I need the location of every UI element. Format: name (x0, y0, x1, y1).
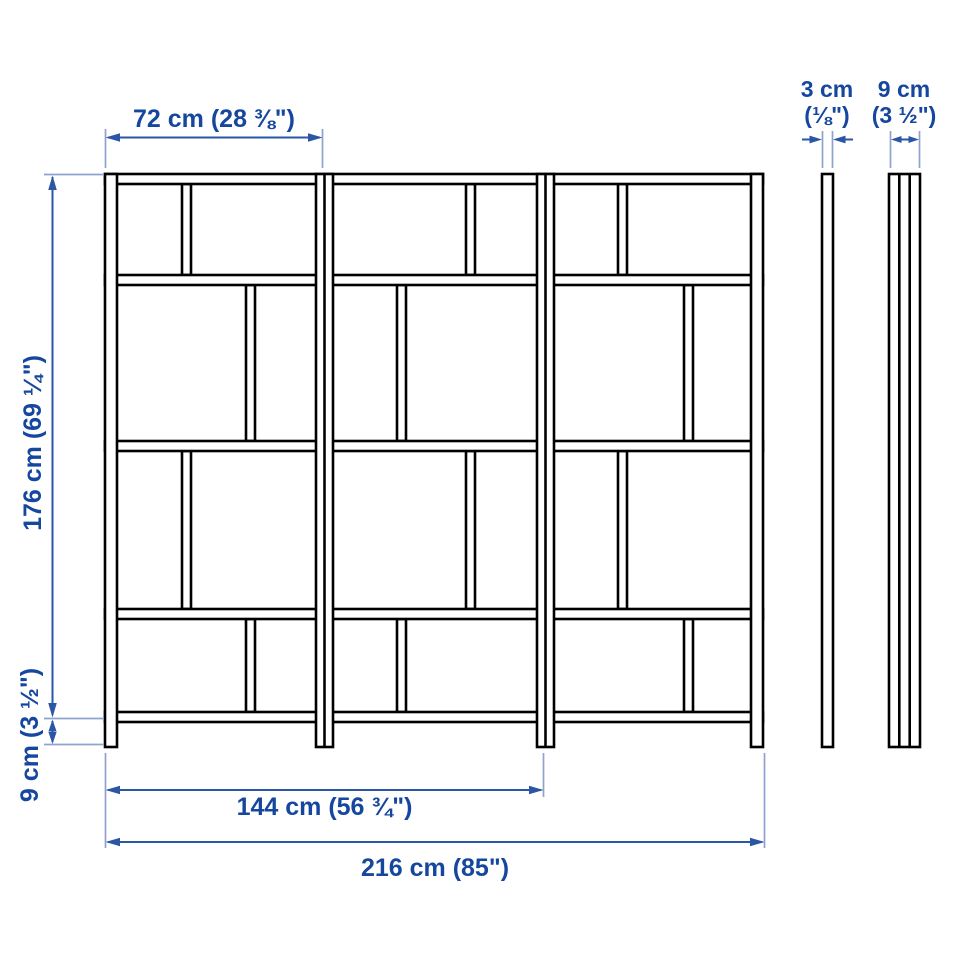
dimension-label-inches: (3 ½") (872, 102, 937, 128)
arrow-up-icon (48, 176, 57, 191)
shelf-divider (684, 619, 693, 712)
shelving-dimension-diagram: 72 cm (28 ⅜") 176 cm (69 ¼") 9 cm (3 ½")… (0, 0, 960, 948)
dimension-bay-width: 72 cm (28 ⅜") (106, 105, 323, 168)
shelf (105, 174, 763, 184)
dimension-label: 176 cm (69 ¼") (19, 355, 47, 531)
shelf-divider (618, 451, 627, 609)
arrow-down-icon (48, 703, 57, 718)
shelf-divider (466, 451, 475, 609)
side-profile-thin (822, 174, 833, 747)
arrow-left-icon (106, 133, 121, 142)
dimension-label-cm: 9 cm (878, 76, 930, 102)
arrow-left-icon (891, 136, 902, 143)
dimension-deep-depth: 9 cm (3 ½") (872, 76, 937, 168)
arrow-left-icon (106, 838, 121, 847)
shelving-unit-front-view (105, 174, 763, 747)
dimension-height: 176 cm (69 ¼") (19, 175, 104, 719)
arrow-right-icon (810, 136, 823, 144)
shelf-divider (182, 451, 191, 609)
shelf-divider (246, 619, 255, 712)
deep-profile-outline (889, 174, 920, 747)
arrow-left-icon (106, 786, 121, 795)
dimension-total-width: 216 cm (85") (106, 753, 765, 882)
arrow-right-icon (909, 136, 920, 143)
shelf (105, 441, 763, 451)
dimension-floor-clearance: 9 cm (3 ½") (16, 668, 104, 802)
shelf (105, 712, 763, 722)
frame-post (105, 174, 117, 747)
dimension-double-bay-width: 144 cm (56 ¾") (106, 753, 544, 848)
thin-profile-outline (822, 174, 833, 747)
dimension-label: 144 cm (56 ¾") (237, 793, 413, 821)
arrow-up-icon (48, 720, 56, 732)
shelf-divider (246, 285, 255, 441)
side-profile-deep (889, 174, 920, 747)
shelf-divider (618, 184, 627, 275)
dimension-label: 216 cm (85") (361, 854, 509, 882)
dimension-diagram-page: 72 cm (28 ⅜") 176 cm (69 ¼") 9 cm (3 ½")… (0, 0, 960, 948)
arrow-left-icon (833, 136, 846, 144)
shelves (105, 174, 763, 722)
dimension-label: 72 cm (28 ⅜") (133, 105, 295, 133)
dimension-thin-depth: 3 cm (⅛") (801, 76, 853, 168)
frame-posts (105, 174, 763, 747)
arrow-down-icon (48, 732, 56, 744)
shelf-divider (466, 184, 475, 275)
dimension-label-inches: (⅛") (804, 102, 849, 128)
arrow-right-icon (750, 838, 765, 847)
shelf (105, 275, 763, 285)
shelf-divider (182, 184, 191, 275)
shelf (105, 609, 763, 619)
arrow-right-icon (308, 133, 323, 142)
dimension-label: 9 cm (3 ½") (16, 668, 44, 802)
shelf-divider (397, 285, 406, 441)
shelf-divider (684, 285, 693, 441)
arrow-right-icon (529, 786, 544, 795)
shelf-divider (397, 619, 406, 712)
dimension-label-cm: 3 cm (801, 76, 853, 102)
frame-post (751, 174, 763, 747)
